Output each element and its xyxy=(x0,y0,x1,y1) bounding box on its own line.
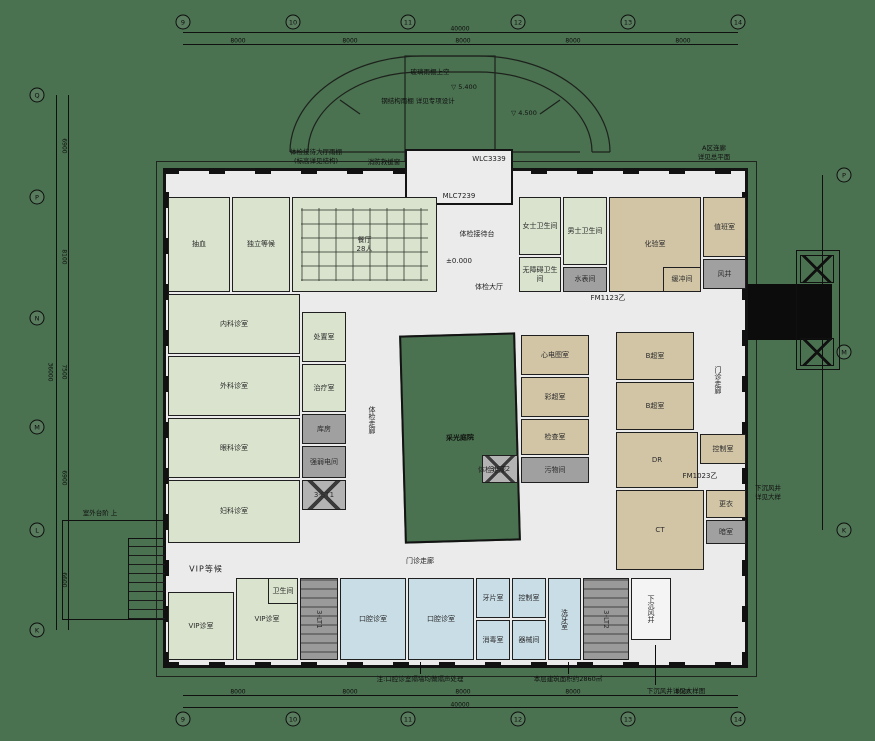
grid-bubble: 14 xyxy=(731,15,746,30)
dim-label: 8000 xyxy=(455,689,470,696)
annotation: 消防救援窗 xyxy=(368,156,401,166)
dim-label: 8000 xyxy=(675,38,690,45)
room-label: 口腔诊室 xyxy=(359,615,387,623)
room: 水表间 xyxy=(563,267,607,292)
room-label: DR xyxy=(652,456,662,464)
dim-label: 40000 xyxy=(450,702,469,709)
grid-bubble: 13 xyxy=(621,712,636,727)
grid-bubble: 13 xyxy=(621,15,636,30)
room: 控制室 xyxy=(700,434,746,464)
dim-line-left-total xyxy=(56,95,57,630)
room-label: 更衣 xyxy=(719,500,733,508)
room-label: 内科诊室 xyxy=(220,320,248,328)
room: 彩超室 xyxy=(521,377,589,417)
room: 女士卫生间 xyxy=(519,197,561,255)
annotation: 注:口腔诊室隔墙均做隔声处理 xyxy=(377,673,464,683)
room-label: 卫生间 xyxy=(273,587,294,595)
room-label: VIP诊室 xyxy=(254,615,279,623)
room-label: 缓冲间 xyxy=(672,275,693,283)
room-label: 器械间 xyxy=(519,636,540,644)
room: 处置室 xyxy=(302,312,346,362)
room-label: 控制室 xyxy=(713,445,734,453)
dim-label: 8000 xyxy=(675,689,690,696)
room: 妇科诊室 xyxy=(168,480,300,543)
grid-bubble: N xyxy=(30,311,45,326)
plan-label: FM1023乙 xyxy=(683,471,718,481)
room: 更衣 xyxy=(706,490,746,518)
room-label: 牙片室 xyxy=(483,594,504,602)
room: 心电图室 xyxy=(521,335,589,375)
room-label: 3-ST1 xyxy=(314,491,334,499)
dim-label: 6600 xyxy=(61,572,68,587)
room-label: 暗室 xyxy=(719,528,733,536)
room-label: 风井 xyxy=(718,270,732,278)
room: 卫生间 xyxy=(268,578,298,604)
room-label: 采光庭院 xyxy=(446,434,474,443)
annotation: 详见总平面 xyxy=(698,151,731,161)
plan-label: 门诊走廊 xyxy=(406,556,434,566)
dim-label: 8000 xyxy=(342,689,357,696)
room: 男士卫生间 xyxy=(563,197,607,265)
room: 内科诊室 xyxy=(168,294,300,354)
room-label: 水表间 xyxy=(575,275,596,283)
room: 眼科诊室 xyxy=(168,418,300,478)
room-label: 女士卫生间 xyxy=(523,222,558,230)
room: 器械间 xyxy=(512,620,546,660)
dim-label: 6900 xyxy=(61,470,68,485)
annotation: ▽ 5.400 xyxy=(451,83,477,91)
grid-bubble: 11 xyxy=(401,15,416,30)
room: 抽血 xyxy=(168,197,230,292)
room-label: 男士卫生间 xyxy=(568,227,603,235)
grid-bubble: M xyxy=(30,420,45,435)
room-label: 治疗室 xyxy=(314,384,335,392)
grid-bubble: L xyxy=(30,523,45,538)
room: 3-ST1 xyxy=(302,480,346,510)
room: 口腔诊室 xyxy=(340,578,406,660)
grid-bubble: 9 xyxy=(176,15,191,30)
plan-label: 体检走廊 xyxy=(478,465,506,475)
room-label: B超室 xyxy=(646,352,665,360)
annotation: 玻璃雨棚上空 xyxy=(411,66,450,76)
dim-label: 8000 xyxy=(230,38,245,45)
door-symbol-bottom xyxy=(800,338,834,366)
room: 治疗室 xyxy=(302,364,346,412)
grid-bubble: P xyxy=(30,190,45,205)
plan-label: 门诊走廊 xyxy=(713,366,723,394)
dim-label: 8000 xyxy=(342,38,357,45)
room: B超室 xyxy=(616,332,694,380)
dim-label: 36000 xyxy=(47,362,54,381)
room-label: 库房 xyxy=(317,425,331,433)
dim-label: 8100 xyxy=(61,249,68,264)
dim-label: 40000 xyxy=(450,26,469,33)
room: 无障碍卫生间 xyxy=(519,257,561,292)
plan-label: WLC3339 xyxy=(472,155,506,163)
plan-label: 体检大厅 xyxy=(475,282,503,292)
room-label: 心电图室 xyxy=(541,351,569,359)
room: B超室 xyxy=(616,382,694,430)
room-label: 妇科诊室 xyxy=(220,507,248,515)
note-leader-3 xyxy=(655,645,656,685)
room-label: 洗牙室 xyxy=(560,609,568,630)
room: 3-LT2 xyxy=(583,578,629,660)
room: 独立等候 xyxy=(232,197,290,292)
annotation: 室外台阶 上 xyxy=(83,507,118,517)
grid-bubble: 11 xyxy=(401,712,416,727)
room: 检查室 xyxy=(521,419,589,455)
room-label: 消毒室 xyxy=(483,636,504,644)
room-label: CT xyxy=(655,526,664,534)
room: 3-LT1 xyxy=(300,578,338,660)
dim-label: 8000 xyxy=(565,689,580,696)
plan-label: 体检接待台 xyxy=(460,229,495,239)
room: 库房 xyxy=(302,414,346,444)
room-label: 值班室 xyxy=(714,223,735,231)
exterior-stair xyxy=(128,538,166,620)
room: 污物间 xyxy=(521,457,589,483)
grid-bubble: 12 xyxy=(511,15,526,30)
annotation: (标高详见结构) xyxy=(294,155,338,165)
room-label: 抽血 xyxy=(192,240,206,248)
grid-bubble: 12 xyxy=(511,712,526,727)
grid-bubble: 10 xyxy=(286,712,301,727)
grid-bubble: Q xyxy=(30,88,45,103)
column-hatch-bottom xyxy=(163,662,748,668)
room: CT xyxy=(616,490,704,570)
room: 洗牙室 xyxy=(548,578,581,660)
annotation: ▽ 4.500 xyxy=(511,109,537,117)
room-label: 检查室 xyxy=(545,433,566,441)
grid-bubble: K xyxy=(30,623,45,638)
room: 外科诊室 xyxy=(168,356,300,416)
door-symbol-top xyxy=(800,255,834,283)
room: 缓冲间 xyxy=(663,267,701,292)
room-label: 强弱电间 xyxy=(310,458,338,466)
room: 餐厅 28人 xyxy=(292,197,437,292)
floor-plan-canvas: 抽血独立等候餐厅 28人女士卫生间无障碍卫生间男士卫生间水表间化验室缓冲间值班室… xyxy=(0,0,875,741)
dim-label: 6900 xyxy=(61,138,68,153)
room: 控制室 xyxy=(512,578,546,618)
room: 消毒室 xyxy=(476,620,510,660)
room: 下沉风井 xyxy=(631,578,671,640)
room-label: 下沉风井 xyxy=(647,595,655,623)
plan-label: ±0.000 xyxy=(446,257,472,265)
grid-bubble: K xyxy=(837,523,852,538)
room-label: VIP诊室 xyxy=(188,622,213,630)
dim-label: 8000 xyxy=(455,38,470,45)
room-label: 3-LT1 xyxy=(315,610,323,629)
room: 风井 xyxy=(703,259,746,289)
room-label: 餐厅 28人 xyxy=(357,236,373,252)
room-label: 3-LT2 xyxy=(602,610,610,629)
room-label: 污物间 xyxy=(545,466,566,474)
room-label: 口腔诊室 xyxy=(427,615,455,623)
room-label: 化验室 xyxy=(645,240,666,248)
room: 强弱电间 xyxy=(302,446,346,478)
grid-bubble: 9 xyxy=(176,712,191,727)
room-label: 外科诊室 xyxy=(220,382,248,390)
room-label: 无障碍卫生间 xyxy=(520,266,560,282)
room-label: 独立等候 xyxy=(247,240,275,248)
dim-label: 8000 xyxy=(230,689,245,696)
dim-label: 7500 xyxy=(61,364,68,379)
plan-label: VIP等候 xyxy=(189,564,223,575)
annotation: 本层建筑面积约2860㎡ xyxy=(534,673,603,683)
grid-bubble: P xyxy=(837,168,852,183)
room: 牙片室 xyxy=(476,578,510,618)
plan-label: MLC7239 xyxy=(443,192,476,200)
room: 值班室 xyxy=(703,197,746,257)
room: 暗室 xyxy=(706,520,746,544)
room-label: 处置室 xyxy=(314,333,335,341)
annotation: 钢结构雨棚 详见专项设计 xyxy=(381,95,455,105)
room: VIP诊室 xyxy=(168,592,234,660)
room-label: B超室 xyxy=(646,402,665,410)
grid-bubble: 10 xyxy=(286,15,301,30)
grid-bubble: 14 xyxy=(731,712,746,727)
grid-bubble: M xyxy=(837,345,852,360)
room-label: 眼科诊室 xyxy=(220,444,248,452)
plan-label: 体检走廊 xyxy=(367,406,377,434)
room-label: 控制室 xyxy=(519,594,540,602)
annotation: 详见大样 xyxy=(755,491,781,501)
room: 口腔诊室 xyxy=(408,578,474,660)
dim-label: 8000 xyxy=(565,38,580,45)
room: 采光庭院 xyxy=(399,332,521,543)
plan-label: FM1123乙 xyxy=(591,293,626,303)
room-label: 彩超室 xyxy=(545,393,566,401)
